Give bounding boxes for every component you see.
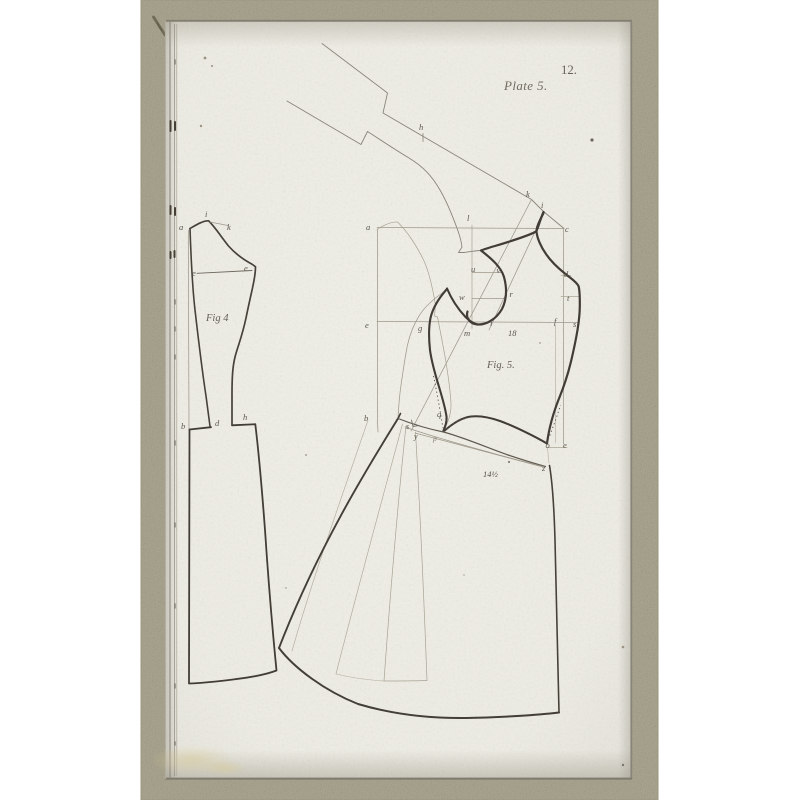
svg-text:g: g bbox=[418, 323, 422, 333]
svg-text:c: c bbox=[565, 224, 569, 234]
svg-text:o: o bbox=[546, 440, 550, 450]
svg-text:h: h bbox=[243, 412, 247, 422]
svg-text:Fig. 5.: Fig. 5. bbox=[486, 360, 515, 371]
svg-text:e: e bbox=[365, 320, 369, 330]
svg-text:k: k bbox=[227, 222, 231, 232]
svg-text:e: e bbox=[192, 268, 196, 278]
svg-text:b: b bbox=[181, 421, 185, 431]
svg-text:b: b bbox=[364, 413, 368, 423]
svg-text:k: k bbox=[526, 189, 530, 199]
svg-text:e: e bbox=[244, 263, 248, 273]
svg-text:y: y bbox=[413, 432, 418, 441]
svg-text:p: p bbox=[432, 434, 437, 443]
svg-text:v: v bbox=[497, 265, 501, 275]
svg-text:Fig 4: Fig 4 bbox=[205, 313, 229, 324]
svg-text:a: a bbox=[366, 222, 370, 232]
svg-text:e: e bbox=[563, 440, 567, 450]
svg-text:18: 18 bbox=[508, 328, 517, 338]
svg-text:z: z bbox=[541, 463, 546, 473]
svg-text:u: u bbox=[471, 264, 475, 274]
svg-text:m: m bbox=[464, 328, 470, 338]
svg-text:14½: 14½ bbox=[483, 469, 499, 479]
svg-text:12.: 12. bbox=[561, 63, 577, 77]
svg-text:Plate 5.: Plate 5. bbox=[503, 78, 548, 93]
svg-text:a: a bbox=[179, 222, 183, 232]
svg-text:h: h bbox=[419, 122, 423, 132]
svg-text:s: s bbox=[406, 422, 409, 431]
svg-text:w: w bbox=[459, 292, 465, 302]
